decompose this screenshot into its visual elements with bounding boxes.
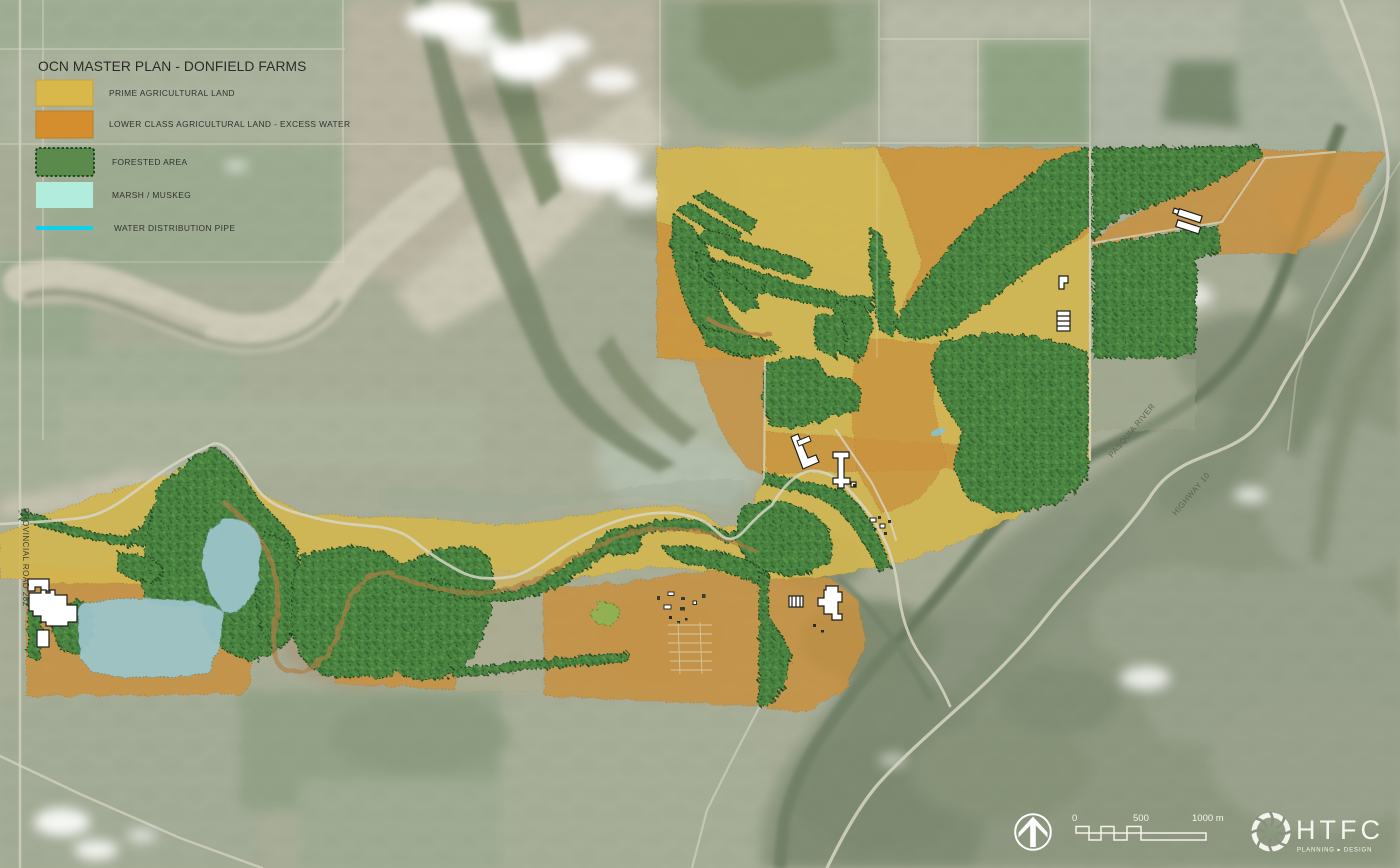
svg-text:PRIME AGRICULTURAL LAND: PRIME AGRICULTURAL LAND [109,88,235,98]
svg-text:OCN MASTER PLAN - DONFIELD FAR: OCN MASTER PLAN - DONFIELD FARMS [38,59,306,74]
svg-text:PROVINCIAL ROAD 282: PROVINCIAL ROAD 282 [21,508,30,607]
svg-text:1000 m: 1000 m [1192,813,1224,824]
svg-text:FORESTED AREA: FORESTED AREA [112,157,187,167]
svg-text:MARSH / MUSKEG: MARSH / MUSKEG [112,190,191,200]
svg-text:PLANNING ▸ DESIGN: PLANNING ▸ DESIGN [1297,848,1372,854]
svg-text:500: 500 [1133,813,1149,824]
svg-text:WATER DISTRIBUTION PIPE: WATER DISTRIBUTION PIPE [114,223,235,233]
svg-text:0: 0 [1072,813,1077,824]
svg-text:LOWER CLASS AGRICULTURAL LAND: LOWER CLASS AGRICULTURAL LAND - EXCESS W… [109,119,350,129]
svg-text:HTFC: HTFC [1296,815,1384,845]
